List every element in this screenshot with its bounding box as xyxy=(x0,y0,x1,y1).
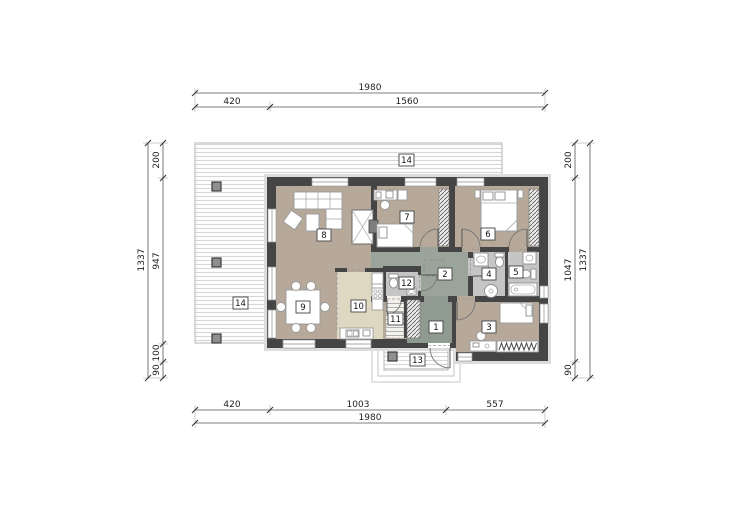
window xyxy=(268,209,276,242)
svg-text:557: 557 xyxy=(486,400,503,410)
bed-room6 xyxy=(475,190,523,231)
svg-text:90: 90 xyxy=(564,364,574,376)
room-label-7: 7 xyxy=(400,211,414,223)
terrace-post xyxy=(212,334,221,343)
washbasin-bath5 xyxy=(523,252,536,264)
room-label-14-left: 14 xyxy=(233,297,248,309)
window xyxy=(540,304,548,323)
svg-text:4: 4 xyxy=(486,270,491,280)
wardrobe-room6 xyxy=(529,189,539,246)
room-label-12: 12 xyxy=(399,277,414,289)
svg-text:6: 6 xyxy=(485,230,490,240)
dining-chair xyxy=(292,324,301,333)
room-label-5: 5 xyxy=(509,266,523,278)
cooktop xyxy=(372,288,383,299)
floor-plan-page: 1 2 3 4 5 6 7 8 9 10 11 12 13 14 14 1980… xyxy=(0,0,735,520)
dim-right: 200 1047 90 1337 xyxy=(564,140,595,381)
svg-text:9: 9 xyxy=(300,303,305,313)
svg-text:7: 7 xyxy=(404,213,409,223)
dining-chair xyxy=(307,282,316,291)
window xyxy=(283,340,315,348)
room-label-3: 3 xyxy=(482,321,496,333)
wardrobe-entry xyxy=(407,300,420,338)
svg-text:1980: 1980 xyxy=(359,83,382,93)
svg-text:1337: 1337 xyxy=(579,249,589,272)
washbasin-bath4 xyxy=(474,253,488,266)
svg-text:2: 2 xyxy=(442,270,447,280)
dining-chair xyxy=(277,303,286,312)
fridge xyxy=(372,273,383,284)
dim-left: 1337 200 947 100 90 xyxy=(137,140,168,381)
terrace-post xyxy=(212,182,221,191)
window xyxy=(540,286,548,298)
nightstand xyxy=(518,190,523,198)
svg-text:12: 12 xyxy=(401,279,412,289)
window xyxy=(346,340,371,348)
bed-room7 xyxy=(377,224,413,247)
room-label-13: 13 xyxy=(410,354,425,366)
svg-text:420: 420 xyxy=(223,97,240,107)
dining-chair xyxy=(292,282,301,291)
svg-text:10: 10 xyxy=(353,302,364,312)
svg-text:1560: 1560 xyxy=(396,97,419,107)
svg-text:200: 200 xyxy=(152,151,162,168)
terrace-post xyxy=(212,258,221,267)
bed-room3 xyxy=(500,303,533,323)
svg-text:8: 8 xyxy=(321,231,326,241)
room-label-4: 4 xyxy=(482,268,496,280)
svg-text:947: 947 xyxy=(152,252,162,269)
floor-plan-drawing: 1 2 3 4 5 6 7 8 9 10 11 12 13 14 14 1980… xyxy=(0,0,735,520)
svg-text:5: 5 xyxy=(513,268,518,278)
svg-text:13: 13 xyxy=(412,356,423,366)
room-label-10: 10 xyxy=(351,300,366,312)
window xyxy=(458,353,472,361)
svg-text:420: 420 xyxy=(223,400,240,410)
svg-text:200: 200 xyxy=(564,151,574,168)
toilet-wc xyxy=(389,274,398,288)
svg-text:1: 1 xyxy=(433,323,438,333)
window xyxy=(457,178,484,186)
svg-text:14: 14 xyxy=(235,299,246,309)
svg-text:1003: 1003 xyxy=(347,400,370,410)
room-label-14-top: 14 xyxy=(399,154,414,166)
dim-top: 1980 420 1560 xyxy=(192,83,548,112)
window xyxy=(405,178,436,186)
coffee-table xyxy=(306,214,319,231)
wardrobe-room3 xyxy=(497,341,538,352)
svg-text:1047: 1047 xyxy=(564,259,574,282)
svg-text:100: 100 xyxy=(152,344,162,361)
desk-chair xyxy=(381,201,390,210)
toilet-bath5 xyxy=(522,269,537,279)
kitchen-sink xyxy=(346,330,359,337)
room-label-2: 2 xyxy=(438,268,452,280)
nightstand xyxy=(475,190,480,198)
svg-text:11: 11 xyxy=(390,315,401,325)
window xyxy=(268,267,276,300)
dim-bottom: 420 1003 557 1980 xyxy=(192,400,548,428)
svg-text:90: 90 xyxy=(152,364,162,376)
window xyxy=(268,310,276,338)
svg-text:14: 14 xyxy=(401,156,412,166)
svg-text:1337: 1337 xyxy=(137,249,147,272)
room-label-11: 11 xyxy=(388,313,403,325)
dining-chair xyxy=(321,303,330,312)
room-label-8: 8 xyxy=(317,229,331,241)
wardrobe-room7 xyxy=(439,189,449,246)
porch-post xyxy=(388,352,397,361)
svg-text:3: 3 xyxy=(486,323,491,333)
toilet-bath4 xyxy=(495,253,504,267)
room-label-9: 9 xyxy=(296,301,310,313)
dining-chair xyxy=(307,324,316,333)
svg-text:1980: 1980 xyxy=(359,413,382,423)
window xyxy=(312,178,348,186)
room-label-6: 6 xyxy=(481,228,495,240)
bathtub xyxy=(509,283,537,296)
room-label-1: 1 xyxy=(429,321,443,333)
shower-basin xyxy=(485,285,498,298)
